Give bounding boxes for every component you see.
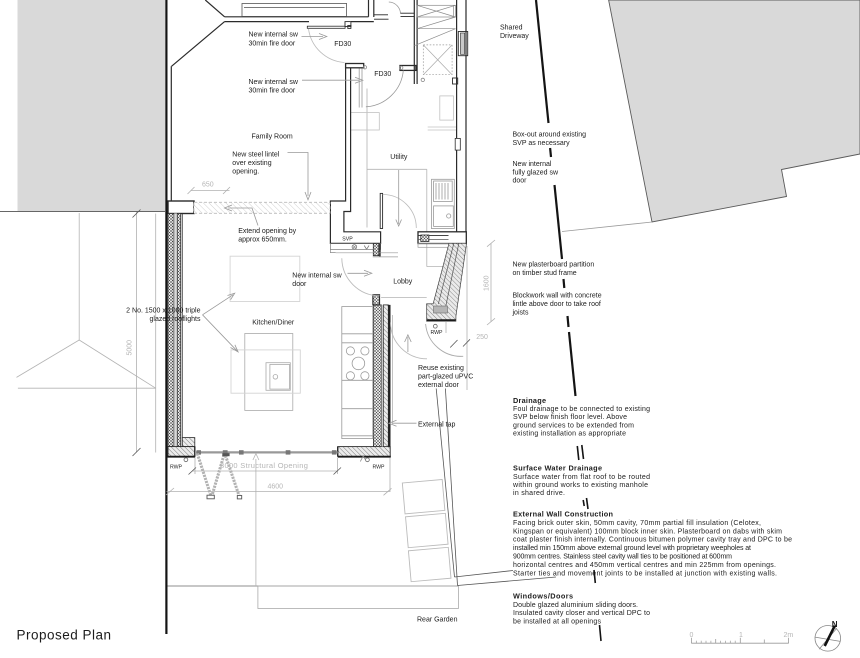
svg-text:part-glazed uPVC: part-glazed uPVC bbox=[418, 374, 473, 381]
svg-text:Reuse existing: Reuse existing bbox=[418, 365, 464, 372]
svg-text:External tap: External tap bbox=[418, 422, 455, 429]
svg-text:in shared drive.: in shared drive. bbox=[513, 490, 565, 497]
svg-text:4600: 4600 bbox=[268, 484, 284, 491]
svg-text:1600: 1600 bbox=[484, 275, 491, 291]
svg-text:Lobby: Lobby bbox=[393, 279, 413, 286]
svg-text:New internal sw: New internal sw bbox=[249, 79, 299, 86]
svg-text:Blockwork wall with concrete: Blockwork wall with concrete bbox=[513, 293, 602, 300]
svg-text:New plasterboard partition: New plasterboard partition bbox=[513, 262, 595, 269]
svg-text:installed min 150mm above exte: installed min 150mm above external groun… bbox=[513, 545, 751, 552]
svg-text:Surface Water Drainage: Surface Water Drainage bbox=[513, 463, 602, 472]
svg-text:over existing: over existing bbox=[232, 160, 271, 167]
svg-text:Kingspan or equivalent) 100mm: Kingspan or equivalent) 100mm block inne… bbox=[513, 528, 782, 535]
svg-text:Shared: Shared bbox=[500, 25, 523, 32]
svg-text:Box-out around existing: Box-out around existing bbox=[513, 132, 587, 139]
svg-text:be installed at all openings: be installed at all openings bbox=[513, 618, 602, 625]
svg-text:Kitchen/Diner: Kitchen/Diner bbox=[252, 319, 295, 326]
svg-text:2 No. 1500 x 1000 triple: 2 No. 1500 x 1000 triple bbox=[126, 308, 200, 315]
svg-text:RWP: RWP bbox=[431, 330, 444, 336]
svg-text:glazed rooflights: glazed rooflights bbox=[150, 316, 201, 323]
svg-text:Facing brick outer skin, 50mm: Facing brick outer skin, 50mm cavity, 70… bbox=[513, 520, 761, 527]
svg-text:Utility: Utility bbox=[390, 154, 408, 161]
svg-text:coat plaster finish internally: coat plaster finish internally. Continuo… bbox=[513, 537, 792, 544]
svg-text:250: 250 bbox=[476, 334, 488, 341]
svg-text:Double glazed aluminium slidin: Double glazed aluminium sliding doors. bbox=[513, 602, 638, 609]
svg-text:30min fire door: 30min fire door bbox=[249, 40, 296, 47]
svg-text:Extend opening by: Extend opening by bbox=[238, 228, 296, 235]
svg-text:New internal sw: New internal sw bbox=[292, 272, 342, 279]
svg-text:on timber stud frame: on timber stud frame bbox=[513, 270, 577, 277]
svg-text:lintle above door to take roof: lintle above door to take roof bbox=[513, 301, 601, 308]
svg-text:existing installation as appro: existing installation as appropriate bbox=[513, 431, 626, 438]
svg-text:2m: 2m bbox=[784, 632, 794, 639]
svg-text:New internal sw: New internal sw bbox=[249, 32, 299, 39]
svg-text:horizontal centres and 450mm v: horizontal centres and 450mm vertical ce… bbox=[513, 562, 776, 569]
svg-text:SVP below finish floor level.: SVP below finish floor level. Above bbox=[513, 414, 627, 421]
svg-text:Windows/Doors: Windows/Doors bbox=[513, 592, 573, 601]
svg-text:door: door bbox=[292, 281, 307, 288]
svg-text:FD30: FD30 bbox=[334, 41, 351, 48]
svg-text:FD30: FD30 bbox=[374, 71, 391, 78]
svg-text:Family Room: Family Room bbox=[252, 134, 293, 141]
svg-text:external door: external door bbox=[418, 382, 460, 389]
svg-text:650: 650 bbox=[202, 182, 214, 189]
svg-text:Insulated cavity closer and ve: Insulated cavity closer and vertical DPC… bbox=[513, 610, 650, 617]
svg-text:New steel lintel: New steel lintel bbox=[232, 151, 280, 158]
svg-text:External Wall Construction: External Wall Construction bbox=[513, 509, 613, 518]
svg-text:opening.: opening. bbox=[232, 169, 259, 176]
svg-text:SVP as necessary: SVP as necessary bbox=[513, 140, 571, 147]
svg-text:30min fire door: 30min fire door bbox=[249, 88, 296, 95]
svg-text:1: 1 bbox=[739, 632, 743, 639]
svg-text:0: 0 bbox=[690, 632, 694, 639]
svg-text:N: N bbox=[832, 620, 838, 629]
svg-text:Proposed Plan: Proposed Plan bbox=[17, 628, 112, 643]
svg-text:3000 Structural Opening: 3000 Structural Opening bbox=[220, 461, 308, 470]
svg-text:door: door bbox=[513, 178, 528, 185]
svg-text:SVP: SVP bbox=[342, 236, 353, 242]
svg-text:Foul drainage to be connected: Foul drainage to be connected to existin… bbox=[513, 406, 650, 413]
svg-text:New internal: New internal bbox=[513, 161, 552, 168]
svg-text:900mm centres. Stainless steel: 900mm centres. Stainless steel cavity wa… bbox=[513, 554, 732, 561]
svg-text:ground services to be extended: ground services to be extended from bbox=[513, 422, 634, 429]
svg-text:5000: 5000 bbox=[127, 340, 134, 356]
svg-text:within ground works to existin: within ground works to existing manhole bbox=[512, 482, 648, 489]
svg-text:fully glazed sw: fully glazed sw bbox=[513, 169, 559, 176]
svg-text:Driveway: Driveway bbox=[500, 33, 529, 40]
svg-text:RWP: RWP bbox=[170, 465, 183, 471]
svg-text:RWP: RWP bbox=[373, 465, 386, 471]
svg-text:joists: joists bbox=[512, 309, 529, 316]
svg-text:Drainage: Drainage bbox=[513, 396, 546, 405]
svg-text:Surface water from flat roof t: Surface water from flat roof to be route… bbox=[513, 474, 650, 481]
svg-text:Starter ties and movement join: Starter ties and movement joints to be i… bbox=[513, 570, 777, 577]
svg-text:approx 650mm.: approx 650mm. bbox=[238, 237, 287, 244]
svg-text:Rear Garden: Rear Garden bbox=[417, 617, 458, 624]
